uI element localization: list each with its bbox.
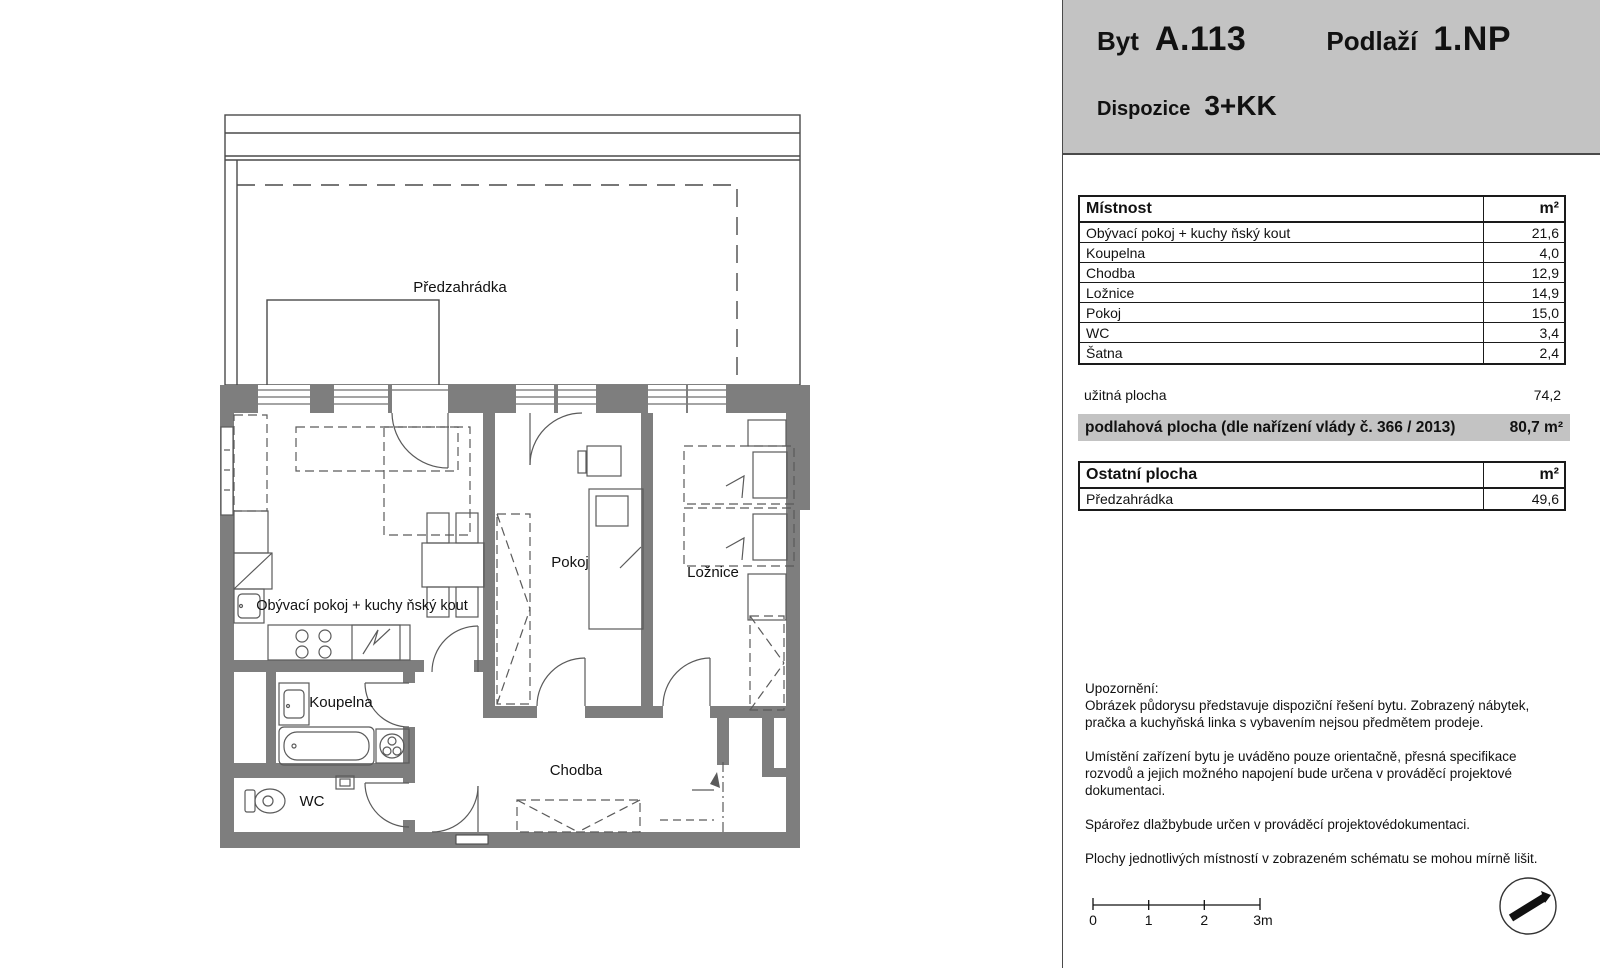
rooms-table-header: Místnost m² (1080, 197, 1564, 223)
note-paragraph: Umístění zařízení bytu je uváděno pouze … (1085, 748, 1553, 799)
chair (456, 513, 478, 543)
entry-door-icon (692, 762, 723, 832)
podlazi-value: 1.NP (1433, 20, 1511, 59)
washbasin-icon (279, 683, 309, 725)
notes-block: Upozornění: Obrázek půdorysu představuje… (1085, 680, 1553, 884)
pillow (753, 514, 787, 560)
col-mistnost: Místnost (1080, 200, 1483, 218)
kitchen-cabinet (234, 511, 268, 553)
door-icon (530, 413, 582, 465)
radiator-icon (221, 427, 233, 515)
window-icon (258, 385, 310, 413)
room-label-garden: Předzahrádka (413, 279, 507, 296)
window-icon (558, 385, 596, 413)
chair (427, 513, 449, 543)
col-m2: m² (1483, 197, 1564, 221)
upper-cabinet (234, 415, 267, 511)
scale-tick-1: 1 (1145, 912, 1153, 928)
bed (589, 489, 643, 629)
window-icon (688, 385, 726, 413)
chair (578, 451, 586, 473)
byt-value: A.113 (1155, 20, 1246, 59)
terrace (267, 300, 439, 385)
door-icon (365, 783, 409, 827)
table-row: Koupelna 4,0 (1080, 243, 1564, 263)
wardrobe (497, 514, 530, 704)
hall-wardrobe (517, 800, 640, 832)
table-row: Pokoj 15,0 (1080, 303, 1564, 323)
double-bed (684, 446, 794, 566)
scale-bar-icon (1093, 898, 1260, 910)
floor-area-value: 80,7 m² (1510, 419, 1563, 437)
floor-area-label: podlahová plocha (dle nařízení vlády č. … (1085, 419, 1455, 437)
pillow (753, 452, 787, 498)
walls (220, 385, 810, 848)
nightstand (748, 420, 786, 446)
table-row: Chodba 12,9 (1080, 263, 1564, 283)
dispozice-label: Dispozice (1097, 98, 1190, 121)
room-chodba (517, 800, 640, 832)
table-row: Obývací pokoj + kuchy ňský kout 21,6 (1080, 223, 1564, 243)
scale-tick-3: 3m (1253, 912, 1272, 928)
panel-header: Byt A.113 Podlaží 1.NP Dispozice 3+KK (1063, 0, 1600, 155)
scale-tick-2: 2 (1200, 912, 1208, 928)
other-areas-table: Ostatní plocha m² Předzahrádka 49,6 (1078, 461, 1566, 511)
room-label-living: Obývací pokoj + kuchy ňský kout (256, 598, 468, 614)
usable-area-row: užitná plocha 74,2 (1078, 384, 1566, 405)
notes-title: Upozornění: (1085, 680, 1553, 697)
note-paragraph: Obrázek půdorysu představuje dispoziční … (1085, 697, 1553, 731)
door-icon (392, 413, 448, 468)
door-icon (432, 626, 478, 672)
fridge-icon (352, 625, 400, 660)
floorplan-sheet: { "header": { "byt_label": "Byt", "byt_v… (0, 0, 1600, 968)
door-icon (432, 786, 478, 832)
doors (365, 413, 723, 832)
french-door-opening (392, 385, 448, 413)
wardrobe (750, 616, 784, 710)
nightstand (748, 574, 786, 620)
room-label-wc: WC (300, 793, 325, 810)
room-label-koupelna: Koupelna (309, 694, 373, 711)
window-icon (516, 385, 554, 413)
bathtub-icon (279, 727, 374, 765)
room-label-pokoj: Pokoj (551, 554, 589, 571)
pillow (596, 496, 628, 526)
table-row: WC 3,4 (1080, 323, 1564, 343)
table-row: Ložnice 14,9 (1080, 283, 1564, 303)
note-paragraph: Spárořez dlažbybude určen v prováděcí pr… (1085, 816, 1553, 833)
floor-plan-svg: Předzahrádka (0, 0, 1063, 968)
table-row: Předzahrádka 49,6 (1080, 489, 1564, 509)
window-icon (648, 385, 686, 413)
table-row: Šatna 2,4 (1080, 343, 1564, 363)
window-icon (334, 385, 388, 413)
sofa (296, 427, 458, 471)
desk (587, 446, 621, 476)
dispozice-value: 3+KK (1204, 90, 1276, 122)
room-label-loznice: Ložnice (687, 564, 739, 581)
room-living (221, 415, 484, 660)
door-icon (537, 658, 585, 706)
door-icon (663, 658, 710, 706)
stove-icon (296, 630, 331, 658)
scale-tick-0: 0 (1089, 912, 1097, 928)
room-label-chodba: Chodba (550, 762, 603, 779)
room-pokoj (497, 446, 643, 704)
podlazi-label: Podlaží (1326, 26, 1417, 57)
footer-graphics: 0 1 2 3m (1063, 858, 1600, 968)
dining-table (422, 543, 484, 587)
other-areas-header: Ostatní plocha m² (1080, 463, 1564, 489)
info-panel: Byt A.113 Podlaží 1.NP Dispozice 3+KK Mí… (1063, 0, 1600, 968)
rooms-table: Místnost m² Obývací pokoj + kuchy ňský k… (1078, 195, 1566, 365)
byt-label: Byt (1097, 26, 1139, 57)
floor-plan: Předzahrádka (0, 0, 1063, 968)
threshold (456, 835, 488, 844)
north-arrow-icon (1500, 878, 1556, 934)
toilet-icon (245, 789, 285, 813)
floor-area-bar: podlahová plocha (dle nařízení vlády č. … (1078, 414, 1570, 441)
garden-area (225, 115, 800, 385)
